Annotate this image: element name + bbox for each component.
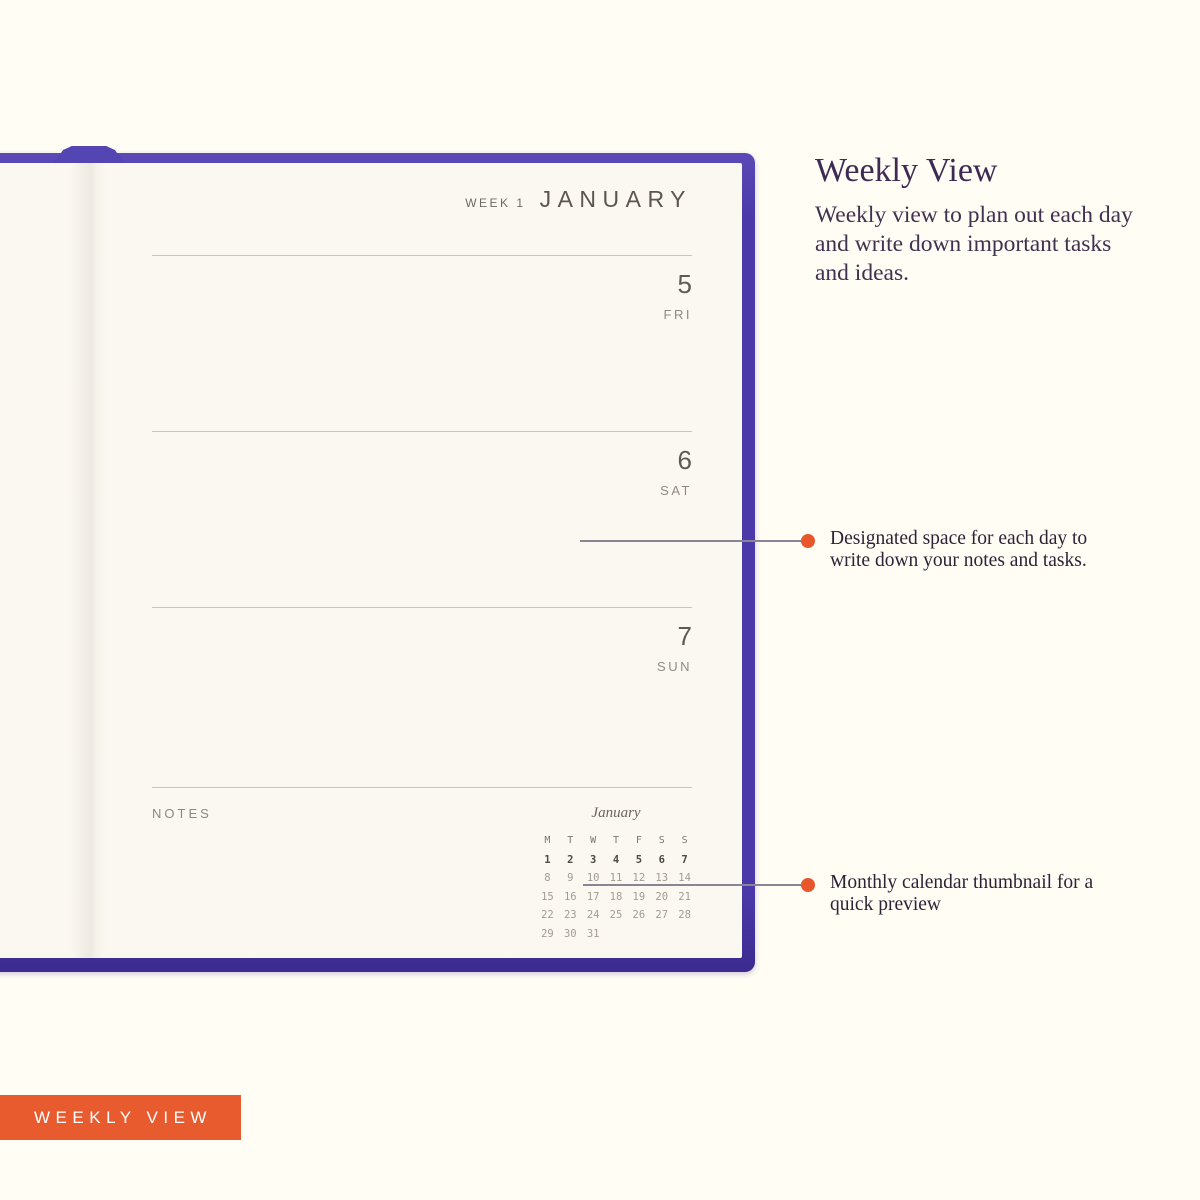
calendar-day: 7 <box>673 851 696 870</box>
calendar-day: 1 <box>536 851 559 870</box>
day-section-sunday: 7 SUN <box>152 607 692 674</box>
date-number: 7 <box>152 621 692 652</box>
weekday-header: F <box>627 832 650 851</box>
calendar-day: 20 <box>650 888 673 907</box>
date-number: 5 <box>152 269 692 300</box>
calendar-day <box>605 925 628 944</box>
week-number-label: WEEK 1 <box>465 196 525 210</box>
notes-label: NOTES <box>152 806 212 821</box>
month-title: JANUARY <box>540 186 692 213</box>
weekday-label: SUN <box>152 659 692 674</box>
mini-calendar-grid: M T W T F S S 1 2 3 4 5 6 7 8 9 10 1 <box>536 832 696 943</box>
day-section-friday: 5 FRI <box>152 255 692 322</box>
weekday-header: S <box>650 832 673 851</box>
weekday-label: FRI <box>152 307 692 322</box>
feature-description: Weekly view to plan out each day and wri… <box>815 201 1150 288</box>
calendar-week-row: 15 16 17 18 19 20 21 <box>536 888 696 907</box>
calendar-day: 6 <box>650 851 673 870</box>
calendar-day <box>673 925 696 944</box>
callout-dot-icon <box>801 878 815 892</box>
calendar-day: 23 <box>559 906 582 925</box>
weekday-header: T <box>605 832 628 851</box>
calendar-day: 30 <box>559 925 582 944</box>
calendar-day: 29 <box>536 925 559 944</box>
calendar-day: 31 <box>582 925 605 944</box>
callout-text-monthly-thumbnail: Monthly calendar thumbnail for a quick p… <box>830 872 1130 915</box>
weekly-view-badge-label: WEEKLY VIEW <box>29 1108 212 1128</box>
calendar-week-row: 29 30 31 <box>536 925 696 944</box>
calendar-day: 15 <box>536 888 559 907</box>
callout-line-day-space <box>580 540 802 542</box>
calendar-day <box>650 925 673 944</box>
page-header: WEEK 1 JANUARY <box>152 186 692 213</box>
calendar-day: 26 <box>627 906 650 925</box>
weekday-header: M <box>536 832 559 851</box>
calendar-day: 21 <box>673 888 696 907</box>
calendar-day: 5 <box>627 851 650 870</box>
calendar-week-row: 22 23 24 25 26 27 28 <box>536 906 696 925</box>
mini-month-calendar: January M T W T F S S 1 2 3 4 5 6 7 8 <box>536 805 696 943</box>
calendar-day: 3 <box>582 851 605 870</box>
calendar-day <box>627 925 650 944</box>
date-number: 6 <box>152 445 692 476</box>
callout-text-day-space: Designated space for each day to write d… <box>830 528 1130 571</box>
weekday-header: W <box>582 832 605 851</box>
calendar-weekday-header-row: M T W T F S S <box>536 832 696 851</box>
calendar-day: 16 <box>559 888 582 907</box>
callout-line-monthly-thumbnail <box>583 884 802 886</box>
weekday-label: SAT <box>152 483 692 498</box>
calendar-day: 2 <box>559 851 582 870</box>
planner-spine-bump <box>53 146 125 164</box>
weekday-header: T <box>559 832 582 851</box>
mini-calendar-month: January <box>536 805 696 822</box>
calendar-day: 4 <box>605 851 628 870</box>
notes-divider <box>152 787 692 788</box>
calendar-day: 22 <box>536 906 559 925</box>
calendar-day: 25 <box>605 906 628 925</box>
calendar-week-row: 1 2 3 4 5 6 7 <box>536 851 696 870</box>
calendar-day: 17 <box>582 888 605 907</box>
calendar-day: 24 <box>582 906 605 925</box>
page-gutter-shadow <box>70 163 106 958</box>
feature-title: Weekly View <box>815 152 1185 190</box>
calendar-day: 8 <box>536 869 559 888</box>
callout-dot-icon <box>801 534 815 548</box>
weekly-view-feature-graphic: WEEK 1 JANUARY 5 FRI 6 SAT 7 SUN NOTES J… <box>0 0 1200 1200</box>
calendar-day: 28 <box>673 906 696 925</box>
day-section-saturday: 6 SAT <box>152 431 692 498</box>
calendar-day: 18 <box>605 888 628 907</box>
calendar-day: 19 <box>627 888 650 907</box>
weekday-header: S <box>673 832 696 851</box>
calendar-day: 27 <box>650 906 673 925</box>
weekly-view-badge: WEEKLY VIEW <box>0 1095 241 1140</box>
calendar-day: 9 <box>559 869 582 888</box>
